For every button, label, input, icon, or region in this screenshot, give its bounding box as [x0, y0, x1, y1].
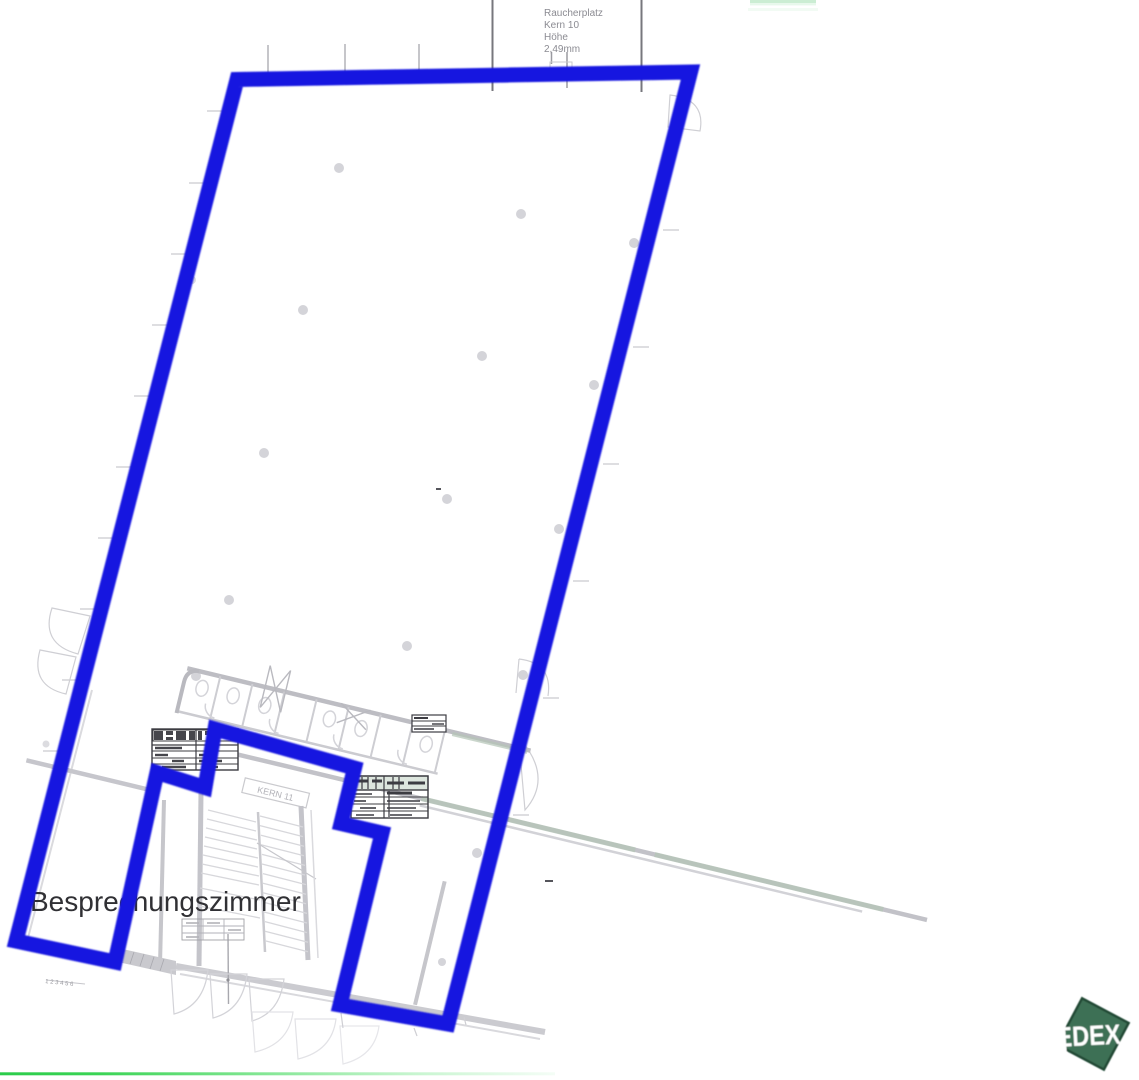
svg-text:Besprechungszimmer: Besprechungszimmer	[30, 886, 301, 917]
svg-text:EDEX: EDEX	[1056, 1019, 1122, 1053]
svg-text:Kern 10: Kern 10	[544, 20, 579, 31]
svg-text:Höhe: Höhe	[544, 32, 568, 43]
svg-text:2,49mm: 2,49mm	[544, 44, 580, 55]
svg-text:Raucherplatz: Raucherplatz	[544, 8, 603, 19]
